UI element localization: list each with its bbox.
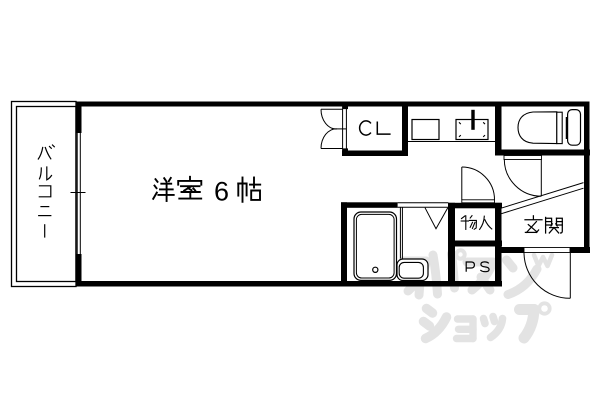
svg-text:6: 6 bbox=[214, 176, 229, 206]
